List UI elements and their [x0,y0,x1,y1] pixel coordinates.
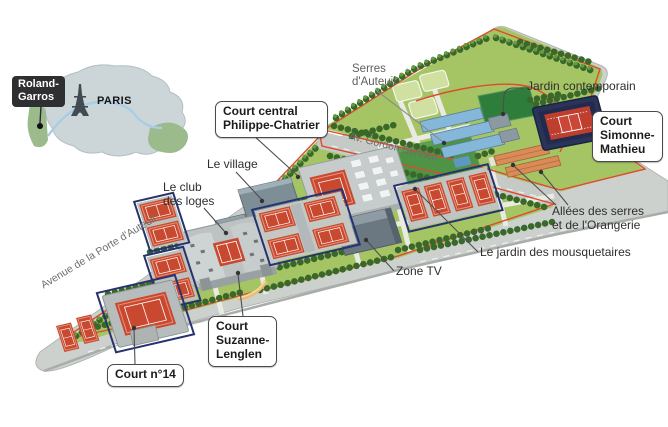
jardin-mousquetaires-label: Le jardin des mousquetaires [480,246,631,260]
zone-tv-label: Zone TV [396,265,442,279]
club-loges-label: Le club des loges [163,181,214,209]
court-simonne-label: Court Simonne- Mathieu [592,111,663,162]
paris-label: PARIS [97,95,132,108]
jardin-contemporain-label: Jardin contemporain [527,80,636,94]
roland-garros-marker-dot [37,123,43,129]
marker-pointer-line [40,106,41,123]
court-chatrier-label: Court central Philippe-Chatrier [215,101,328,138]
court-14-label: Court n°14 [107,364,184,387]
court-lenglen-label: Court Suzanne- Lenglen [208,316,277,367]
serres-auteuil-label: Serres d'Auteuil [352,63,396,90]
allees-serres-label: Allées des serres et de l'Orangerie [552,205,644,233]
village-label: Le village [207,158,258,172]
roland-garros-label: Roland- Garros [12,76,65,107]
roland-garros-site-map: Roland- Garros PARIS Serres d'Auteuil Ja… [0,0,668,427]
